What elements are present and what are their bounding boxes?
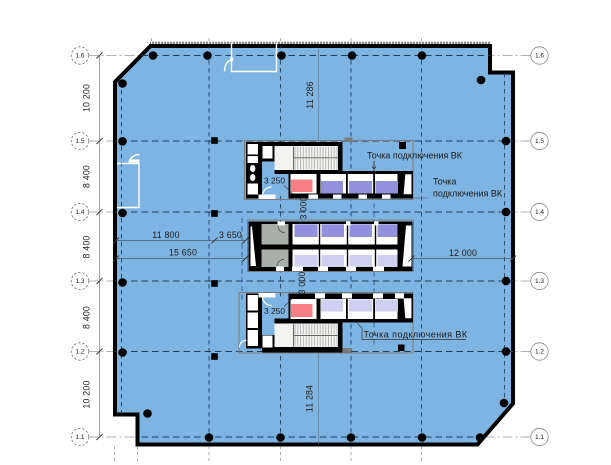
svg-text:1.6: 1.6 bbox=[535, 53, 544, 60]
svg-text:10 200: 10 200 bbox=[82, 84, 92, 112]
svg-text:8 400: 8 400 bbox=[82, 235, 92, 258]
svg-text:Точка подключения ВК: Точка подключения ВК bbox=[367, 151, 463, 161]
svg-text:11 284: 11 284 bbox=[305, 385, 315, 412]
svg-text:3 650: 3 650 bbox=[219, 230, 242, 240]
svg-text:3 000: 3 000 bbox=[297, 271, 307, 294]
svg-text:10 200: 10 200 bbox=[82, 380, 92, 408]
svg-text:Точка: Точка bbox=[433, 177, 456, 187]
svg-text:12 000: 12 000 bbox=[449, 248, 477, 258]
svg-text:3 000: 3 000 bbox=[299, 196, 309, 219]
svg-text:15 650: 15 650 bbox=[169, 248, 197, 258]
svg-text:1.4: 1.4 bbox=[75, 209, 84, 216]
svg-text:1.4: 1.4 bbox=[535, 209, 544, 216]
svg-text:1.2: 1.2 bbox=[75, 349, 84, 356]
svg-text:1.5: 1.5 bbox=[75, 138, 84, 145]
svg-text:8 400: 8 400 bbox=[82, 165, 92, 188]
svg-text:8 400: 8 400 bbox=[82, 306, 92, 329]
svg-text:подключения ВК: подключения ВК bbox=[433, 189, 503, 199]
svg-text:3 250: 3 250 bbox=[264, 176, 285, 186]
svg-text:11 800: 11 800 bbox=[152, 230, 179, 240]
svg-text:1.1: 1.1 bbox=[75, 434, 84, 441]
svg-text:1.6: 1.6 bbox=[75, 53, 84, 60]
svg-text:11 286: 11 286 bbox=[305, 81, 315, 108]
svg-text:1.3: 1.3 bbox=[75, 278, 84, 285]
svg-text:1.1: 1.1 bbox=[535, 434, 544, 441]
svg-text:3 250: 3 250 bbox=[264, 306, 285, 316]
svg-text:1.3: 1.3 bbox=[535, 278, 544, 285]
svg-text:1.5: 1.5 bbox=[535, 138, 544, 145]
svg-text:Точка подключения ВК: Точка подключения ВК bbox=[364, 330, 468, 340]
svg-text:1.2: 1.2 bbox=[535, 349, 544, 356]
